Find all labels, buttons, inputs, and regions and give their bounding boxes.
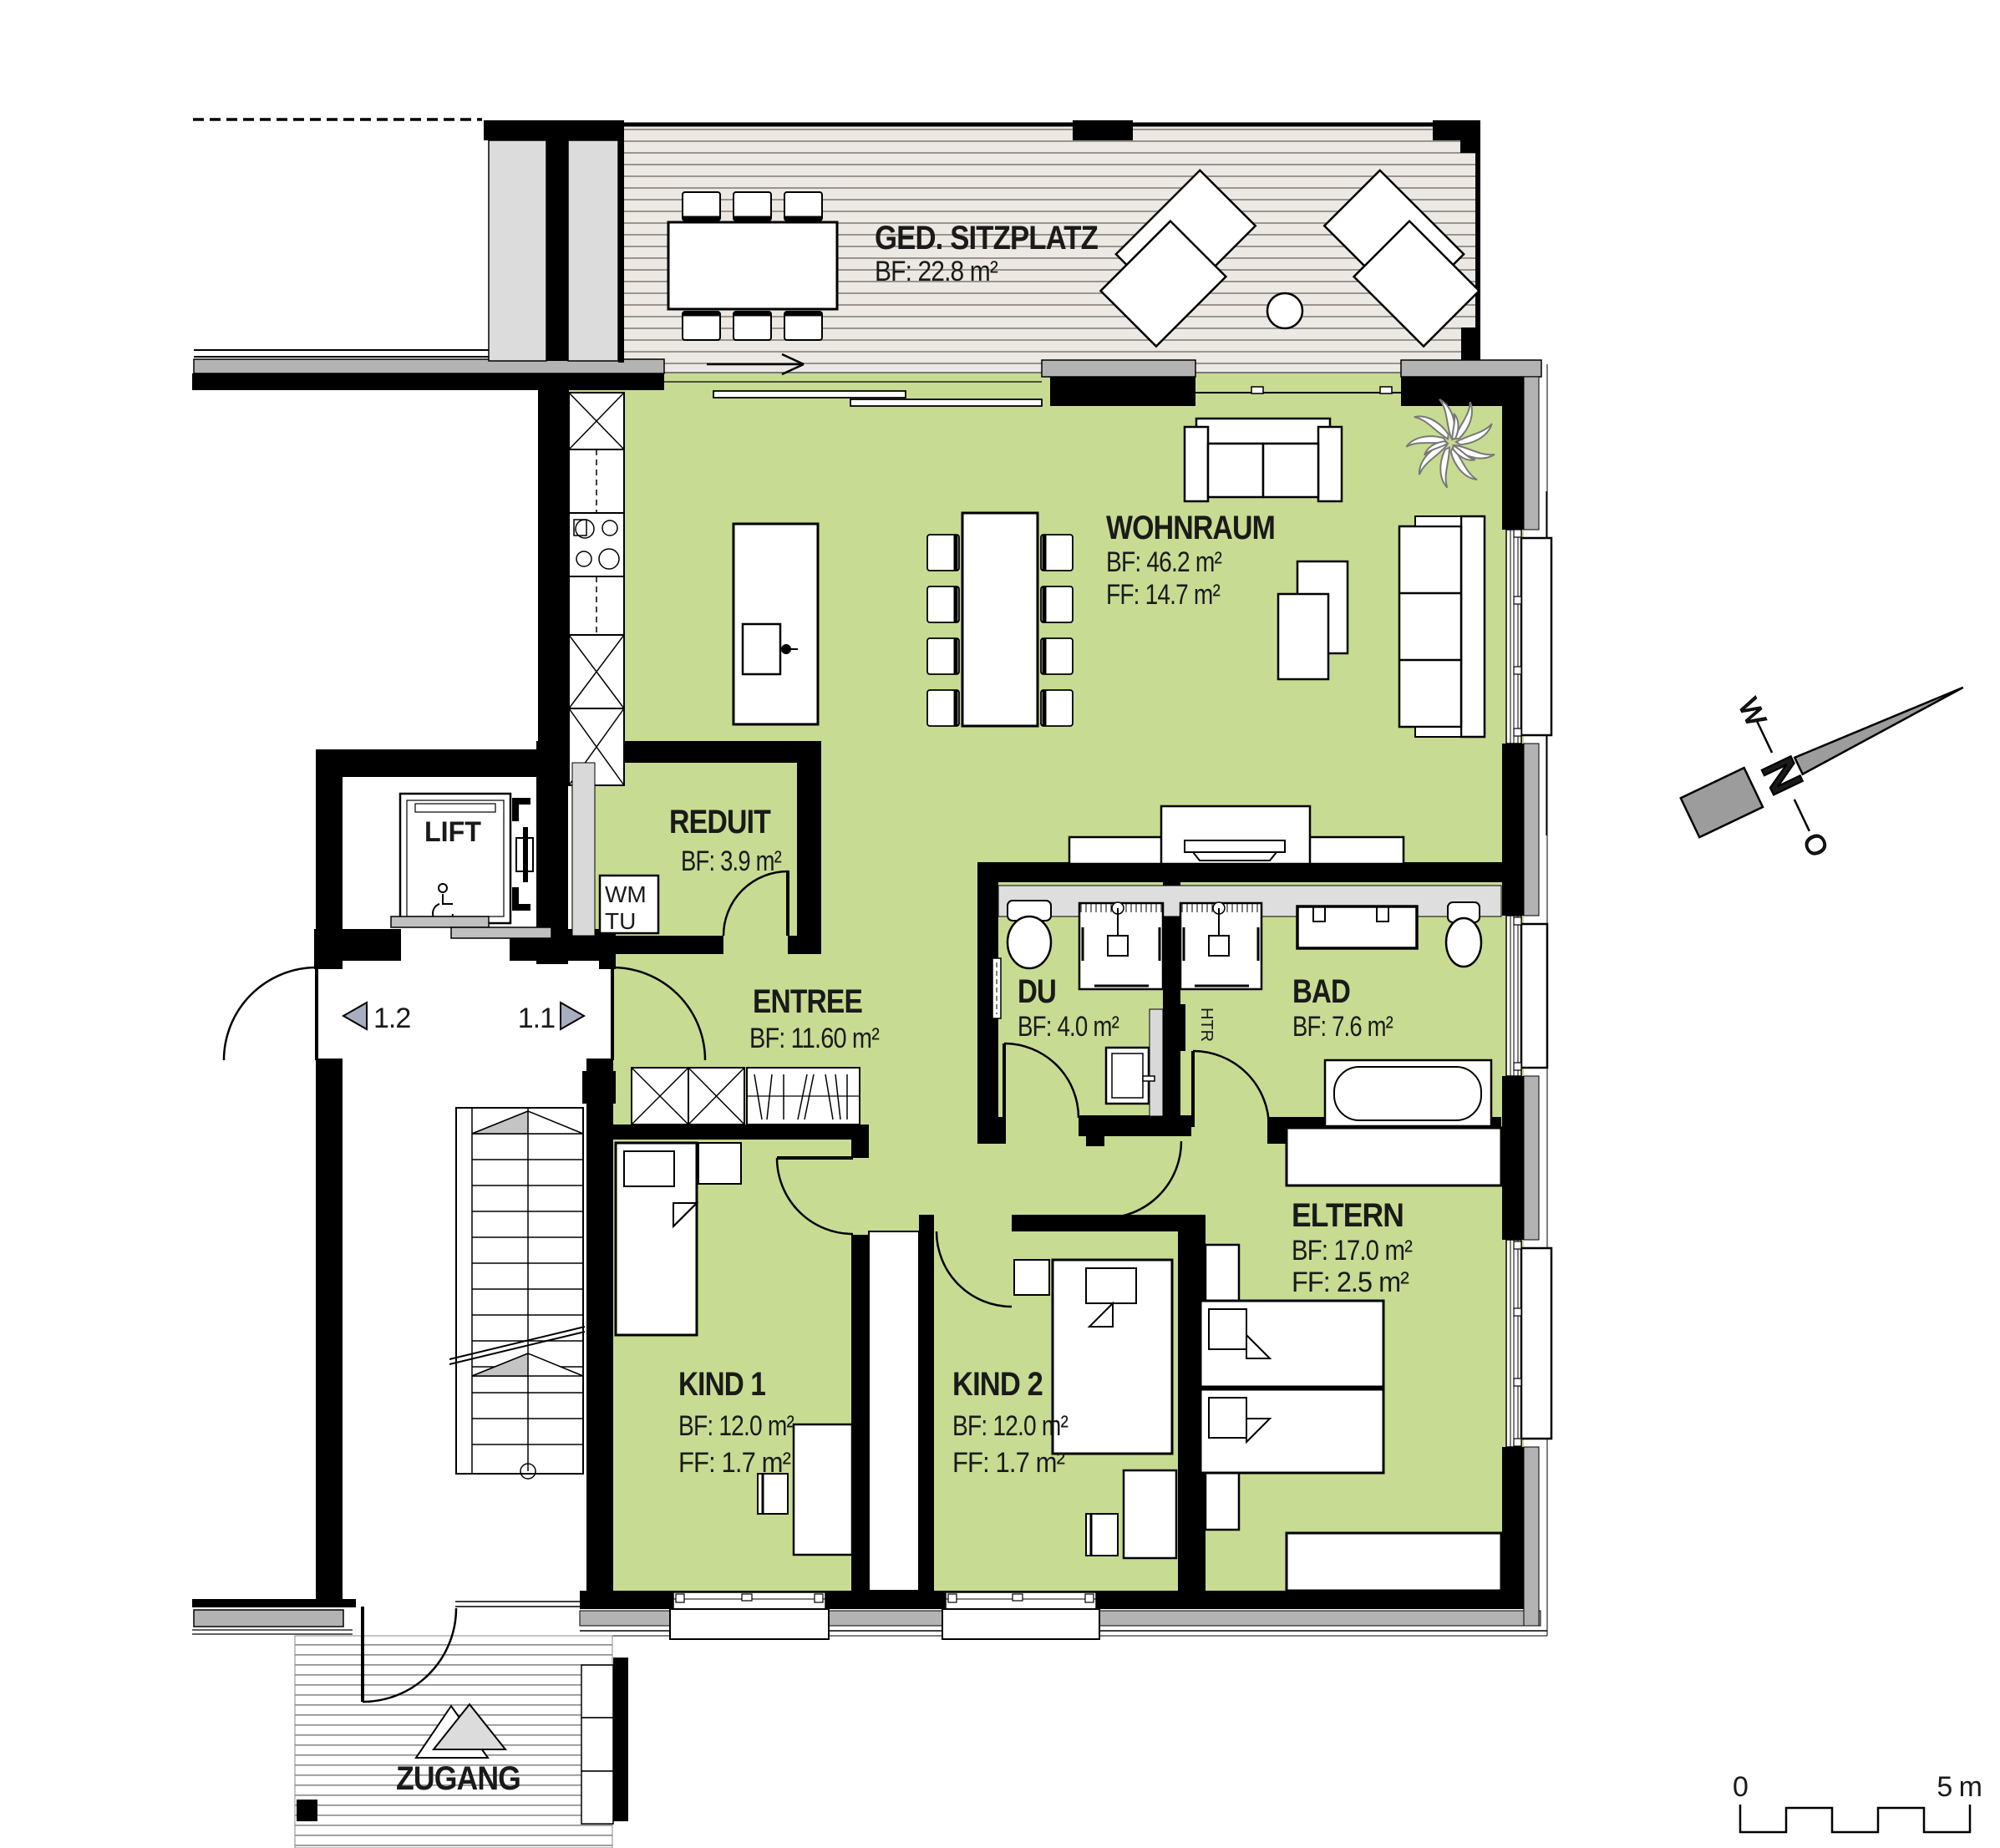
- svg-text:BF: 3.9 m²: BF: 3.9 m²: [681, 845, 782, 877]
- svg-text:REDUIT: REDUIT: [669, 804, 770, 840]
- svg-text:FF: 1.7 m²: FF: 1.7 m²: [678, 1447, 791, 1479]
- svg-text:BF: 12.0 m²: BF: 12.0 m²: [952, 1410, 1069, 1442]
- svg-text:BF: 7.6 m²: BF: 7.6 m²: [1292, 1011, 1393, 1043]
- svg-text:BF: 17.0 m²: BF: 17.0 m²: [1292, 1235, 1413, 1267]
- svg-text:HTR: HTR: [1197, 1008, 1216, 1042]
- svg-text:BAD: BAD: [1292, 973, 1350, 1010]
- svg-text:GED. SITZPLATZ: GED. SITZPLATZ: [875, 220, 1098, 256]
- svg-text:WOHNRAUM: WOHNRAUM: [1106, 510, 1275, 546]
- svg-text:BF: 4.0 m²: BF: 4.0 m²: [1018, 1011, 1119, 1043]
- svg-text:LIFT: LIFT: [424, 816, 481, 848]
- svg-text:WM: WM: [605, 881, 647, 907]
- svg-text:ZUGANG: ZUGANG: [396, 1760, 520, 1797]
- svg-text:KIND 2: KIND 2: [952, 1366, 1043, 1403]
- svg-text:1.1: 1.1: [518, 1003, 555, 1034]
- svg-text:TU: TU: [605, 908, 636, 934]
- svg-text:BF: 46.2 m²: BF: 46.2 m²: [1106, 546, 1222, 578]
- svg-text:FF: 14.7 m²: FF: 14.7 m²: [1106, 579, 1221, 611]
- svg-text:0: 0: [1733, 1771, 1748, 1803]
- svg-text:FF: 1.7 m²: FF: 1.7 m²: [952, 1447, 1065, 1479]
- svg-text:ELTERN: ELTERN: [1292, 1197, 1404, 1234]
- svg-text:1.2: 1.2: [373, 1003, 410, 1034]
- svg-text:KIND 1: KIND 1: [678, 1366, 766, 1403]
- svg-text:BF: 22.8 m²: BF: 22.8 m²: [875, 256, 998, 287]
- svg-text:FF: 2.5 m²: FF: 2.5 m²: [1292, 1267, 1409, 1298]
- svg-text:5 m: 5 m: [1937, 1771, 1982, 1803]
- svg-text:BF: 11.60 m²: BF: 11.60 m²: [749, 1023, 880, 1054]
- svg-text:DU: DU: [1018, 973, 1056, 1010]
- svg-text:ENTREE: ENTREE: [753, 983, 862, 1020]
- svg-text:BF: 12.0 m²: BF: 12.0 m²: [678, 1410, 794, 1442]
